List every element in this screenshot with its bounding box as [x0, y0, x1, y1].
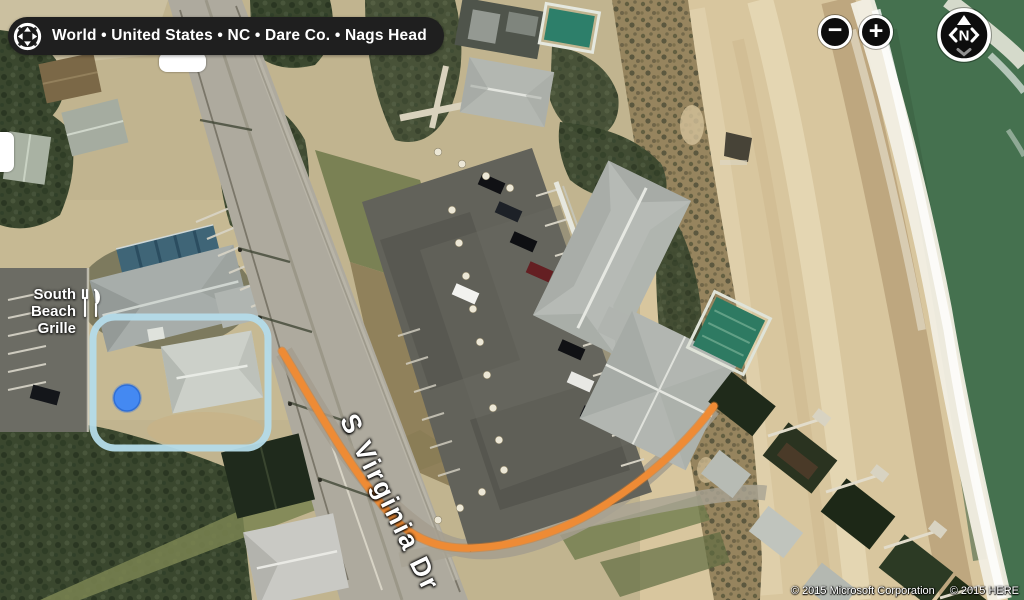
restaurant-icon	[80, 287, 102, 319]
compass-north-label: N	[959, 28, 970, 45]
poi-name-line1: South Beach	[0, 286, 76, 320]
breadcrumb-trail[interactable]: World • United States • NC • Dare Co. • …	[52, 27, 427, 45]
zoom-out-button[interactable]: −	[818, 15, 852, 49]
plus-icon: +	[869, 19, 884, 44]
attribution-here: © 2015 HERE	[950, 585, 1019, 597]
poi-south-beach-grille[interactable]: South Beach Grille	[0, 286, 106, 330]
poi-name-line2: Grille	[0, 320, 76, 337]
road-shield-left	[0, 132, 14, 172]
map-attribution: © 2015 Microsoft Corporation © 2015 HERE	[791, 585, 1019, 597]
globe-icon	[12, 21, 43, 52]
breadcrumb-bar: World • United States • NC • Dare Co. • …	[8, 17, 444, 55]
aerial-imagery	[0, 0, 1024, 600]
location-marker[interactable]	[112, 383, 142, 413]
attribution-microsoft: © 2015 Microsoft Corporation	[791, 585, 935, 597]
zoom-in-button[interactable]: +	[859, 15, 893, 49]
road-shield	[159, 52, 206, 72]
map-viewport[interactable]: South Beach Grille S Virginia Dr Wor	[0, 0, 1024, 600]
minus-icon: −	[828, 18, 843, 43]
compass-control[interactable]: N	[935, 6, 993, 64]
